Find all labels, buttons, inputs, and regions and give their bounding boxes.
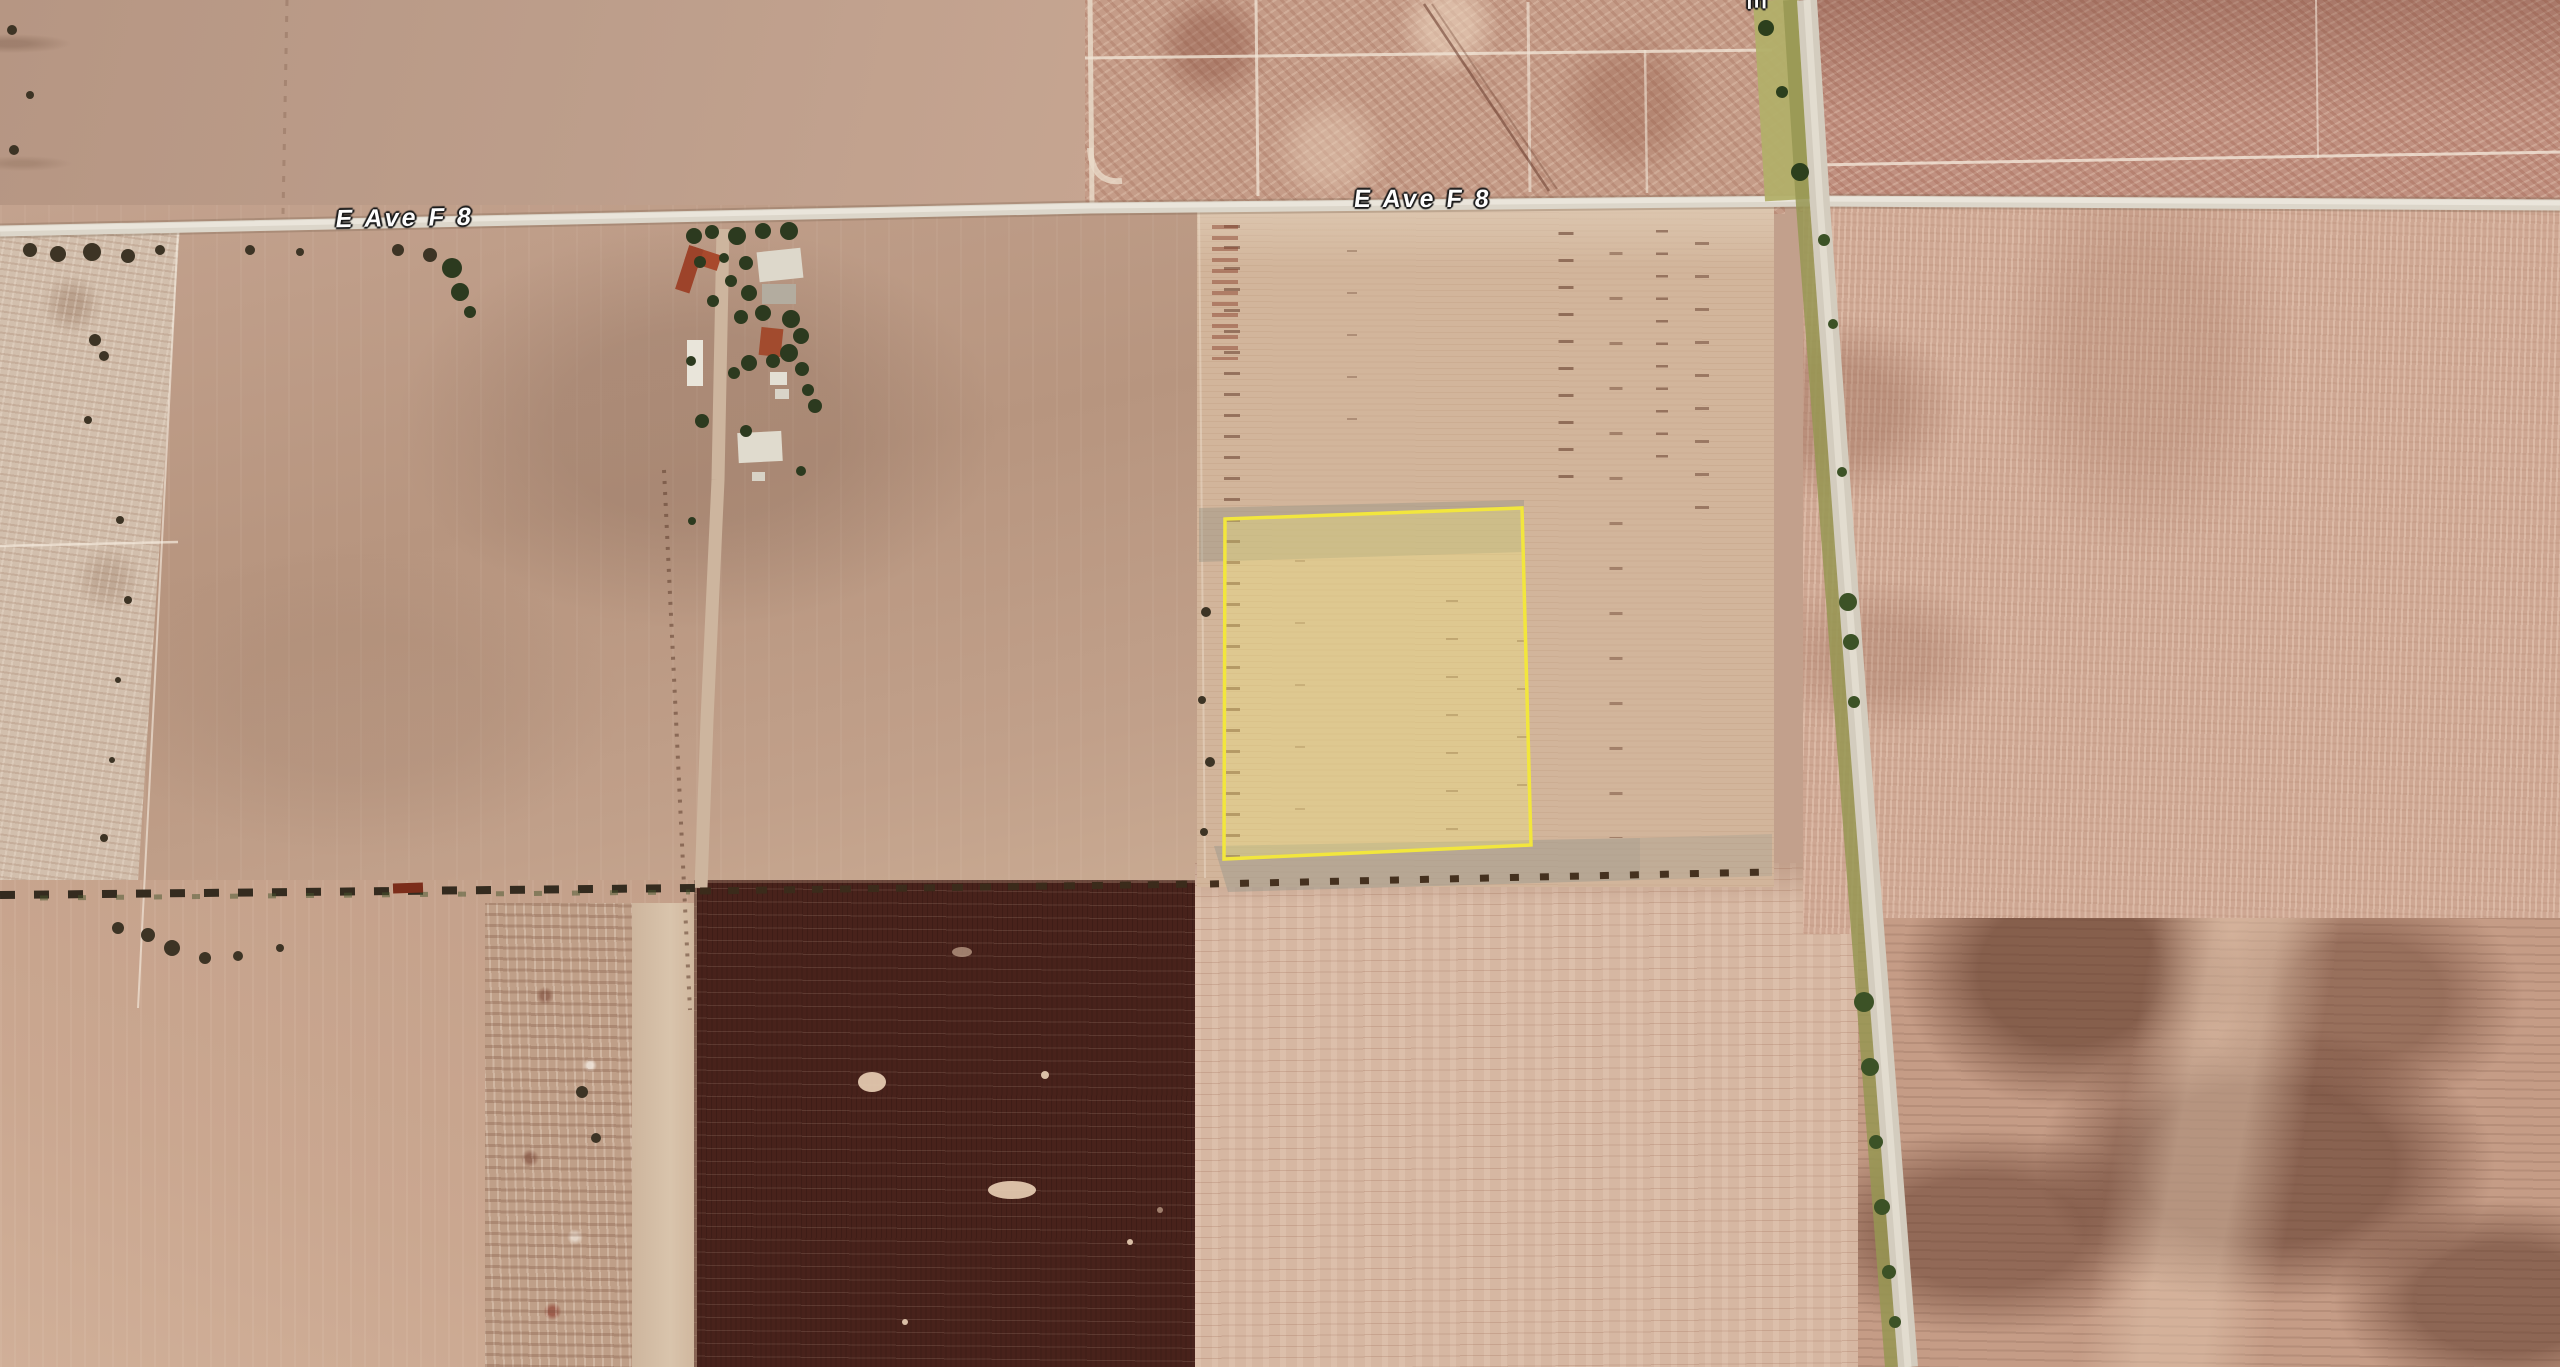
road-label-partial-north: E (1741, 0, 1770, 10)
field-southeast-blotched (1858, 918, 2560, 1367)
road-label-e-ave-f8-west: E Ave F 8 (333, 203, 476, 234)
field-dark-crop (694, 880, 1209, 1367)
field-top-right-scrub (1798, 0, 2560, 212)
satellite-map-canvas[interactable]: E Ave F 8 E Ave F 8 E (0, 0, 2560, 1367)
field-top-center-scrub (1085, 0, 1785, 214)
field-west-large (0, 205, 1202, 897)
road-label-e-ave-f8-center: E Ave F 8 (1352, 185, 1493, 214)
field-east-large (1803, 204, 2560, 934)
field-top-left (0, 0, 1100, 218)
selected-parcel-outline[interactable] (1224, 508, 1531, 859)
field-south-center-rows (1195, 863, 1895, 1367)
dirt-road-junk-east (632, 903, 696, 1367)
junkyard-strip (485, 903, 635, 1367)
